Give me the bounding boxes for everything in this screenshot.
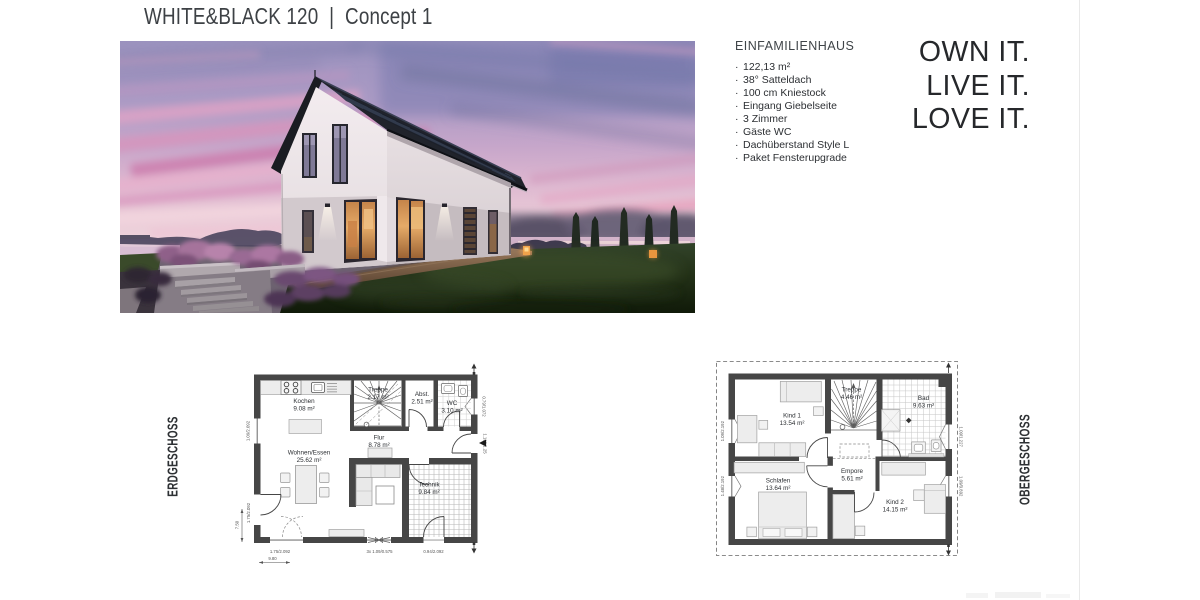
- svg-text:2.51 m²: 2.51 m²: [411, 399, 432, 406]
- svg-text:13.54 m²: 13.54 m²: [780, 420, 805, 427]
- svg-text:1.09/0.892: 1.09/0.892: [959, 476, 964, 497]
- svg-text:1.75/2.092: 1.75/2.092: [270, 549, 291, 554]
- svg-text:9.80: 9.80: [268, 556, 277, 561]
- svg-text:25.62 m²: 25.62 m²: [297, 457, 322, 464]
- svg-text:1.09/1.227: 1.09/1.227: [959, 427, 964, 448]
- svg-text:Kind 1: Kind 1: [783, 413, 801, 420]
- svg-text:9.08 m²: 9.08 m²: [293, 406, 314, 413]
- svg-text:3.10 m²: 3.10 m²: [441, 408, 462, 415]
- svg-text:9.84 m²: 9.84 m²: [418, 489, 439, 496]
- svg-text:7.50: 7.50: [235, 520, 240, 529]
- svg-text:Treppe: Treppe: [842, 387, 862, 394]
- svg-text:9.63 m²: 9.63 m²: [913, 403, 934, 410]
- svg-text:Schlafen: Schlafen: [766, 478, 791, 485]
- svg-text:1.09/2.092: 1.09/2.092: [246, 420, 251, 441]
- svg-text:Wohnen/Essen: Wohnen/Essen: [288, 450, 331, 457]
- svg-text:0.79/1.072: 0.79/1.072: [482, 396, 487, 417]
- svg-text:Technik: Technik: [418, 482, 440, 489]
- svg-text:0.94/2.092: 0.94/2.092: [423, 549, 444, 554]
- svg-text:Flur: Flur: [374, 435, 385, 442]
- svg-text:2.17 m²: 2.17 m²: [367, 394, 388, 401]
- svg-text:1.75/2.092: 1.75/2.092: [246, 502, 251, 523]
- svg-text:4.46 m²: 4.46 m²: [841, 394, 862, 401]
- svg-text:13.64 m²: 13.64 m²: [766, 485, 791, 492]
- svg-text:3x 1.09/0.575: 3x 1.09/0.575: [366, 549, 393, 554]
- svg-text:14.15 m²: 14.15 m²: [883, 507, 908, 514]
- svg-text:Kochen: Kochen: [293, 398, 315, 405]
- svg-text:Empore: Empore: [841, 468, 864, 475]
- svg-text:8.78 m²: 8.78 m²: [368, 442, 389, 449]
- svg-text:Kind 2: Kind 2: [886, 499, 904, 506]
- svg-text:Treppe: Treppe: [368, 387, 388, 394]
- svg-text:Abst.: Abst.: [415, 391, 430, 398]
- svg-text:Bad: Bad: [918, 395, 930, 402]
- svg-text:1.09/2.192: 1.09/2.192: [720, 420, 725, 441]
- svg-text:5.61 m²: 5.61 m²: [841, 476, 862, 483]
- svg-text:WC: WC: [447, 400, 458, 407]
- svg-text:1.48/2.192: 1.48/2.192: [720, 475, 725, 496]
